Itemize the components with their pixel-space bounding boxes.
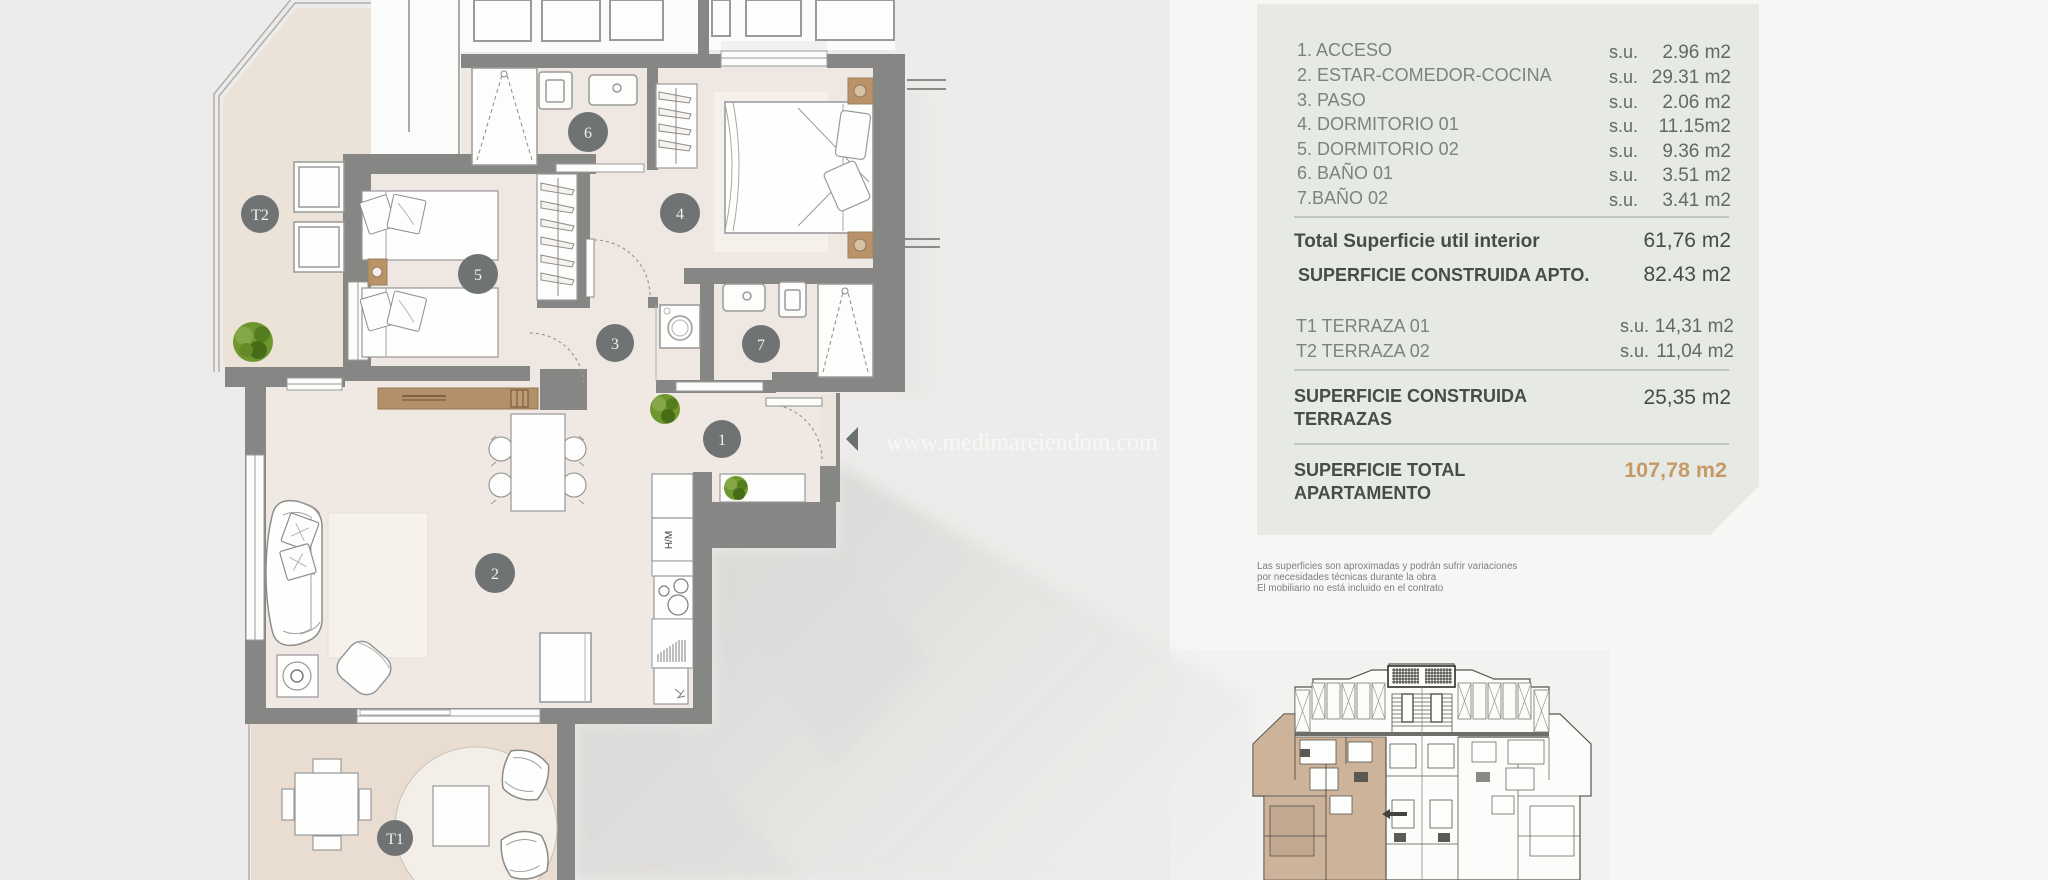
svg-text:61,76 m2: 61,76 m2 <box>1643 229 1731 252</box>
svg-text:SUPERFICIE CONSTRUIDA: SUPERFICIE CONSTRUIDA <box>1294 386 1527 406</box>
svg-text:6. BAÑO 01: 6. BAÑO 01 <box>1297 162 1393 183</box>
svg-text:4. DORMITORIO 01: 4. DORMITORIO 01 <box>1297 114 1459 134</box>
svg-text:1: 1 <box>718 432 726 449</box>
svg-text:9.36 m2: 9.36 m2 <box>1662 141 1731 162</box>
svg-text:SUPERFICIE CONSTRUIDA APTO.: SUPERFICIE CONSTRUIDA APTO. <box>1298 265 1589 285</box>
svg-text:Total Superficie util interior: Total Superficie util interior <box>1294 231 1540 252</box>
svg-text:www.medimareiendom.com: www.medimareiendom.com <box>886 430 1158 456</box>
svg-text:3.51 m2: 3.51 m2 <box>1662 165 1731 186</box>
svg-text:por necesidades técnicas duran: por necesidades técnicas durante la obra <box>1257 572 1437 583</box>
svg-text:Las superficies son aproximada: Las superficies son aproximadas y podrán… <box>1257 561 1517 572</box>
svg-text:7.BAÑO 02: 7.BAÑO 02 <box>1297 187 1388 208</box>
svg-text:TERRAZAS: TERRAZAS <box>1294 409 1392 429</box>
svg-text:2.96 m2: 2.96 m2 <box>1662 42 1731 63</box>
svg-text:APARTAMENTO: APARTAMENTO <box>1294 483 1431 503</box>
svg-text:25,35 m2: 25,35 m2 <box>1643 386 1731 409</box>
svg-text:s.u.: s.u. <box>1609 42 1638 62</box>
svg-text:2.06 m2: 2.06 m2 <box>1662 92 1731 113</box>
svg-text:3.41 m2: 3.41 m2 <box>1662 190 1731 211</box>
svg-text:3. PASO: 3. PASO <box>1297 90 1366 110</box>
svg-text:s.u.: s.u. <box>1609 165 1638 185</box>
svg-text:El mobiliario no está incluido: El mobiliario no está incluido en el con… <box>1257 583 1444 594</box>
svg-text:s.u.: s.u. <box>1609 141 1638 161</box>
svg-text:107,78 m2: 107,78 m2 <box>1624 458 1727 482</box>
svg-text:s.u.: s.u. <box>1609 92 1638 112</box>
svg-text:5. DORMITORIO 02: 5. DORMITORIO 02 <box>1297 139 1459 159</box>
svg-text:T2: T2 <box>251 207 269 224</box>
svg-text:s.u.: s.u. <box>1609 116 1638 136</box>
svg-text:H/M: H/M <box>664 531 675 549</box>
svg-text:1. ACCESO: 1. ACCESO <box>1297 40 1392 60</box>
svg-text:4: 4 <box>676 206 684 223</box>
svg-text:2. ESTAR-COMEDOR-COCINA: 2. ESTAR-COMEDOR-COCINA <box>1297 65 1552 85</box>
svg-text:s.u.: s.u. <box>1609 67 1638 87</box>
svg-text:7: 7 <box>757 337 765 354</box>
svg-text:82.43 m2: 82.43 m2 <box>1643 263 1731 286</box>
svg-text:T1: T1 <box>386 831 404 848</box>
svg-text:6: 6 <box>584 125 592 142</box>
svg-text:s.u.: s.u. <box>1620 316 1649 336</box>
svg-text:29.31 m2: 29.31 m2 <box>1652 67 1731 88</box>
svg-text:5: 5 <box>474 267 482 284</box>
svg-text:2: 2 <box>491 566 499 583</box>
svg-text:s.u.: s.u. <box>1620 341 1649 361</box>
svg-text:s.u.: s.u. <box>1609 190 1638 210</box>
svg-text:11,04 m2: 11,04 m2 <box>1656 341 1734 362</box>
svg-text:3: 3 <box>611 336 619 353</box>
svg-text:SUPERFICIE TOTAL: SUPERFICIE TOTAL <box>1294 460 1465 480</box>
svg-text:14,31 m2: 14,31 m2 <box>1655 316 1734 337</box>
svg-text:T1 TERRAZA 01: T1 TERRAZA 01 <box>1296 316 1430 336</box>
svg-text:11.15m2: 11.15m2 <box>1658 116 1731 137</box>
svg-text:T2 TERRAZA 02: T2 TERRAZA 02 <box>1296 341 1430 361</box>
